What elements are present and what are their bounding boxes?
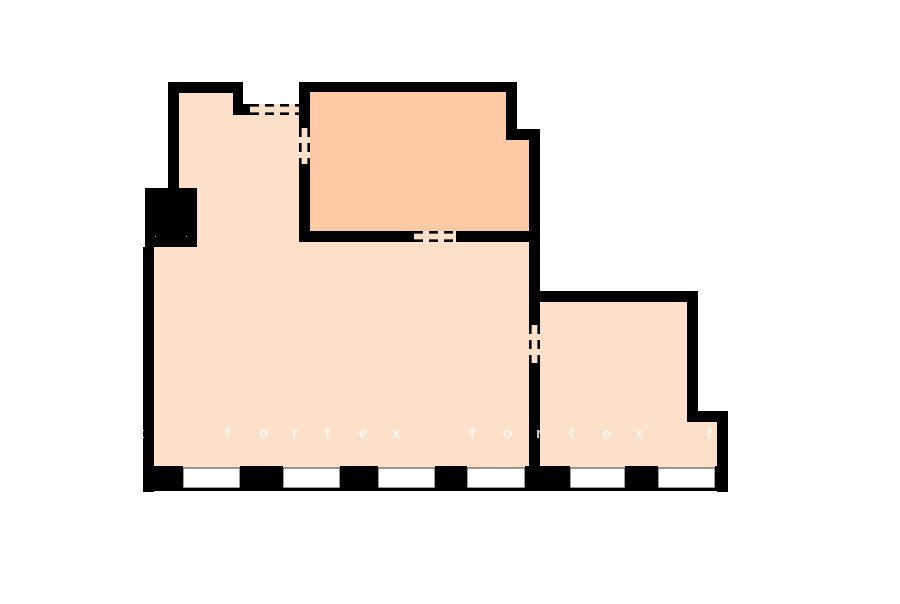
floor-plan-page: x fortex fortex f xyxy=(0,0,900,604)
wall-upper-room-top xyxy=(299,82,517,92)
wall-left-upper xyxy=(168,82,179,188)
wall-upper-room-bottom-right xyxy=(456,231,540,242)
window-pier-2 xyxy=(240,466,283,491)
window-pier-6 xyxy=(625,466,658,491)
wall-right-room-right xyxy=(687,291,698,422)
wall-divider-lower xyxy=(529,363,540,468)
window-band xyxy=(143,466,728,491)
window-3 xyxy=(378,468,435,488)
window-2 xyxy=(283,468,340,488)
opening-upper-room-bottom xyxy=(414,231,456,242)
window-1 xyxy=(183,468,240,488)
wall-left-lower xyxy=(143,247,154,492)
window-pier-3 xyxy=(340,466,378,491)
wall-divider-upper xyxy=(529,129,540,325)
window-pier-4 xyxy=(435,466,467,491)
wall-notch-horizontal xyxy=(233,104,250,115)
opening-upper-room-left xyxy=(299,128,310,164)
wall-right-room-top xyxy=(540,291,698,302)
column-fixture-blob xyxy=(153,193,189,241)
window-6 xyxy=(658,468,715,488)
window-5 xyxy=(570,468,625,488)
wall-main-top xyxy=(168,82,243,93)
opening-divider xyxy=(529,325,540,363)
watermark-partial-left: x xyxy=(136,425,145,442)
window-4 xyxy=(467,468,525,488)
window-band-sill-line xyxy=(143,488,728,491)
opening-top-notch xyxy=(250,104,299,115)
window-pier-1 xyxy=(143,466,183,491)
column-fixture xyxy=(145,188,197,247)
floor-upper-room xyxy=(310,90,529,233)
window-pier-7 xyxy=(715,466,728,491)
floor-plan-canvas: x fortex fortex f xyxy=(0,0,900,604)
wall-upper-room-left-bottom xyxy=(299,164,310,242)
window-pier-5 xyxy=(525,466,570,491)
wall-upper-room-bottom-left xyxy=(299,231,414,242)
